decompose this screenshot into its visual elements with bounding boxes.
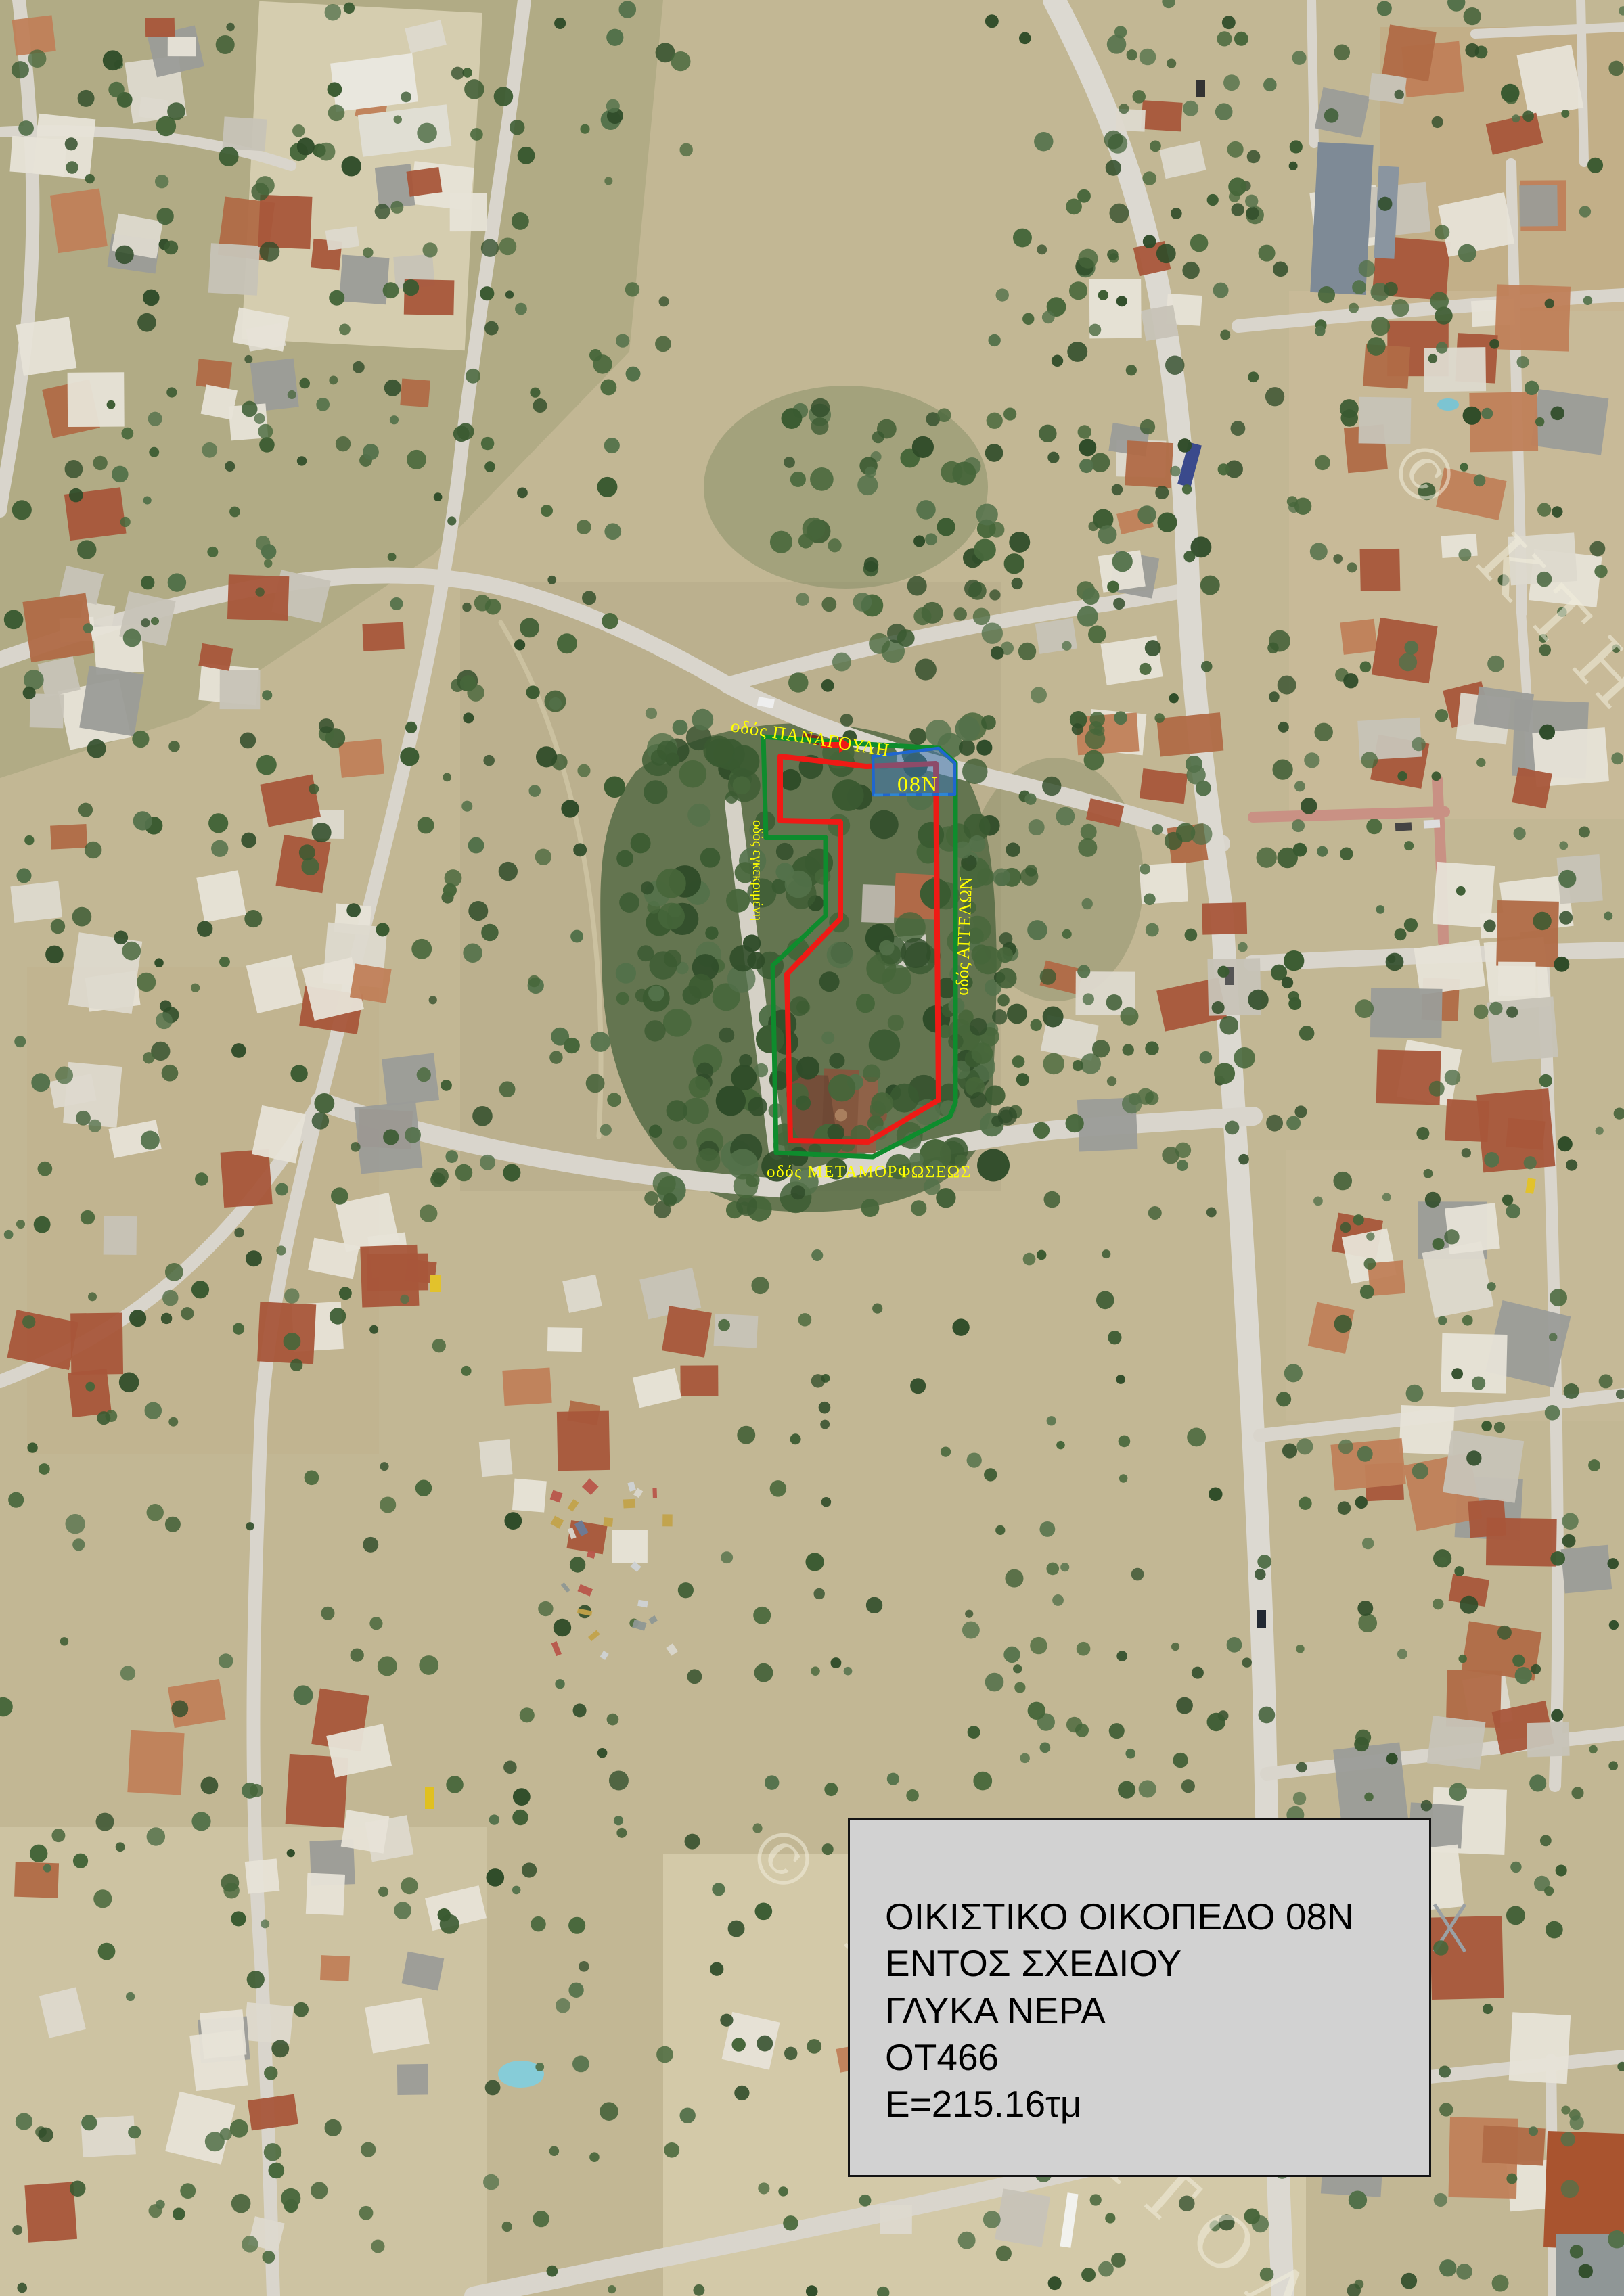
swimming-pool <box>1437 398 1459 411</box>
street-label-aggelon: οδός ΑΓΓΕΛΩΝ <box>952 877 976 996</box>
map-stage: © ΚΤΗΜΑ © ΚΤΗΜΑΤΟΛΟΓΙΟ Α.Ε. 08N οδός ΠΑΝ… <box>0 0 1624 2296</box>
street-label-egkekrimeni: οδός εγκεκριμένη <box>750 820 766 921</box>
plot-shed <box>861 884 895 923</box>
info-line-status: ΕΝΤΟΣ ΣΧΕΔΙΟΥ <box>885 1940 1409 1987</box>
street-label-metamorfoseos: οδός ΜΕΤΑΜΟΡΦΩΣΕΩΣ <box>767 1163 972 1181</box>
plot-id-label: 08N <box>897 772 939 796</box>
info-box: ΟΙΚΙΣΤΙΚΟ ΟΙΚΟΠΕΔΟ 08Ν ΕΝΤΟΣ ΣΧΕΔΙΟΥ ΓΛΥ… <box>848 1818 1431 2177</box>
info-line-surface: Ε=215.16τμ <box>885 2081 1409 2128</box>
info-line-area-name: ΓΛΥΚΑ ΝΕΡΑ <box>885 1988 1409 2034</box>
info-line-title: ΟΙΚΙΣΤΙΚΟ ΟΙΚΟΠΕΔΟ 08Ν <box>885 1893 1409 1940</box>
info-line-block: ΟΤ466 <box>885 2034 1409 2081</box>
greenhouse-building <box>330 53 418 112</box>
